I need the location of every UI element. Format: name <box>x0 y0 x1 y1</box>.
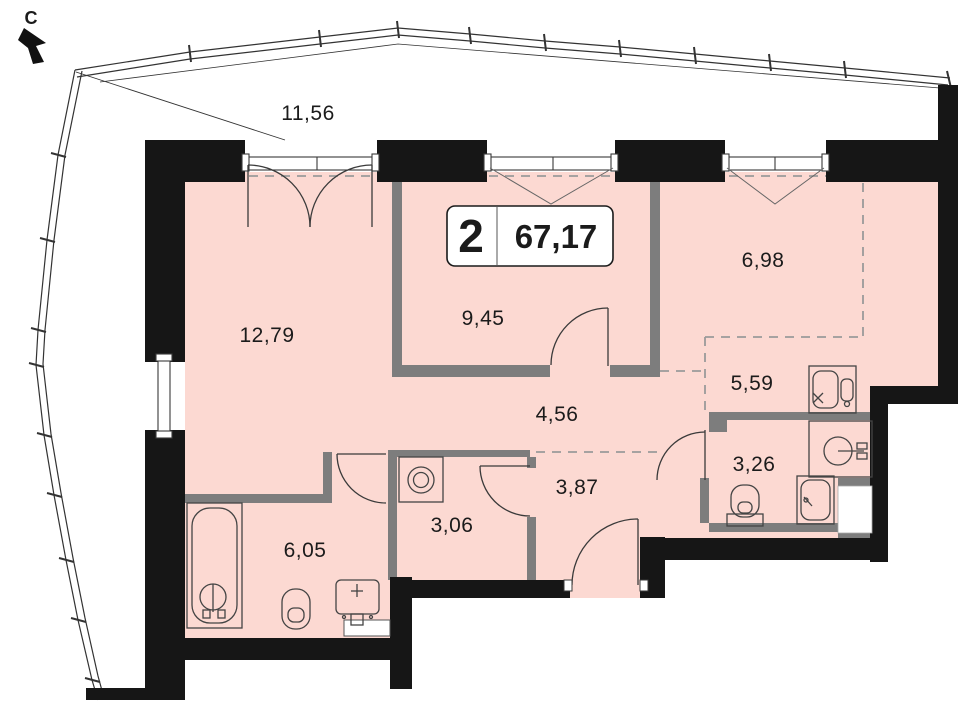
badge-room-count: 2 <box>458 210 484 262</box>
floor-plan-page: С <box>0 0 980 715</box>
room-area-label: 9,45 <box>462 307 505 330</box>
area-badge: 2 67,17 <box>447 206 613 266</box>
room-area-label: 4,56 <box>536 403 579 426</box>
balcony-area-label: 11,56 <box>281 102 335 125</box>
badge-total-area: 67,17 <box>515 218 598 255</box>
room-area-label: 5,59 <box>731 372 774 395</box>
room-area-label: 6,05 <box>284 539 327 562</box>
room-area-label: 6,98 <box>742 249 785 272</box>
room-area-label: 3,06 <box>431 514 474 537</box>
room-area-label: 3,87 <box>556 476 599 499</box>
room-area-label: 3,26 <box>733 453 776 476</box>
floor-plan-svg: С <box>0 0 980 715</box>
room-area-label: 12,79 <box>239 324 294 347</box>
compass-letter: С <box>25 8 38 28</box>
north-arrow: С <box>18 8 46 64</box>
